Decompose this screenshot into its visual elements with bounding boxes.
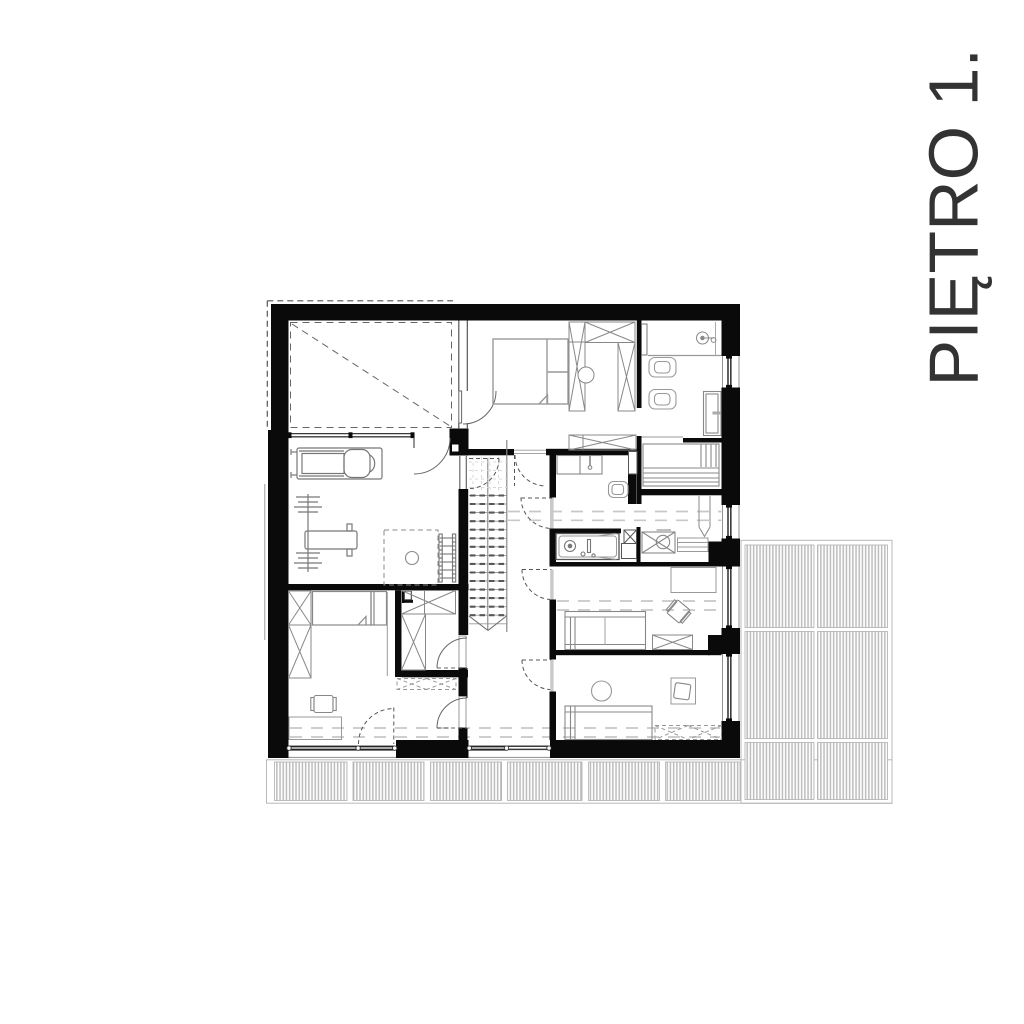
svg-text:PIĘTRO 1.: PIĘTRO 1. [915,48,993,386]
